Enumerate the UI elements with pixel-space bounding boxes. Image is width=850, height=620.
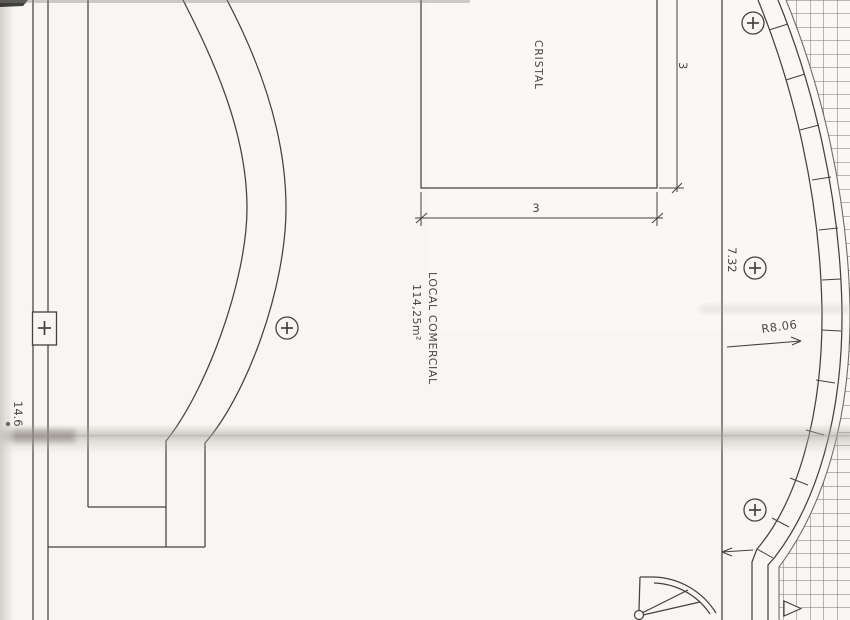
fold-crease — [0, 424, 850, 454]
page-edge-shadow — [0, 0, 16, 620]
dim-cristal-width-label: 3 — [532, 201, 539, 215]
column-marker-circle-cross-icon — [744, 499, 766, 521]
paper-light-area — [430, 0, 850, 330]
glass-label: CRISTAL — [532, 40, 544, 90]
column-marker-circle-cross-icon — [744, 257, 766, 279]
dim-span-right-label: 7.32 — [725, 247, 739, 273]
faint-crease — [700, 305, 850, 313]
room-area-label: 114,25m² — [410, 284, 423, 341]
floor-plan-drawing: CRISTAL LOCAL COMERCIAL 114,25m² 3 3 7.3… — [0, 0, 850, 620]
column-marker-circle-cross-icon — [276, 317, 298, 339]
column-marker-square-cross-icon — [33, 312, 57, 345]
scanned-floor-plan-page: CRISTAL LOCAL COMERCIAL 114,25m² 3 3 7.3… — [0, 0, 850, 620]
scan-speck — [6, 422, 10, 426]
top-edge-shadow — [0, 0, 470, 3]
dim-cristal-height-label: 3 — [676, 62, 690, 69]
fold-crease-line — [0, 435, 850, 436]
column-marker-circle-cross-icon — [742, 12, 764, 34]
room-name-label: LOCAL COMERCIAL — [426, 272, 439, 385]
